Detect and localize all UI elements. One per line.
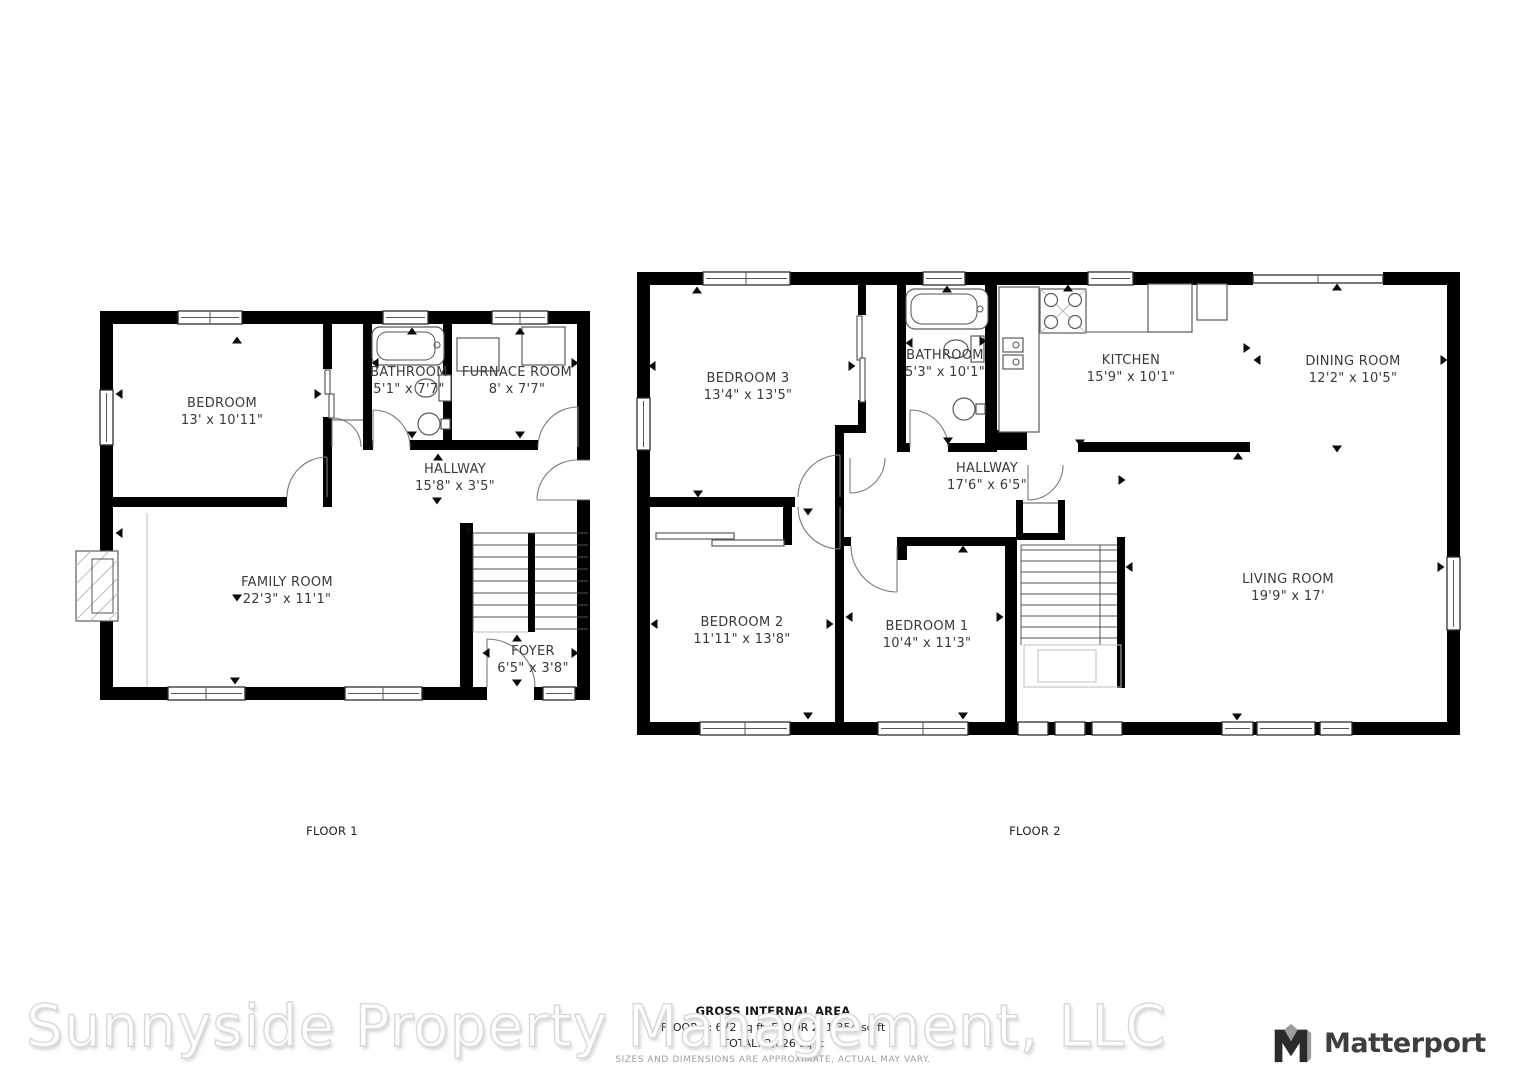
room-label-living-room: LIVING ROOM 19'9" x 17' xyxy=(1242,571,1334,605)
room-label-foyer: FOYER 6'5" x 3'8" xyxy=(497,643,568,677)
room-dims: 15'8" x 3'5" xyxy=(415,478,495,495)
room-label-dining-room: DINING ROOM 12'2" x 10'5" xyxy=(1305,353,1400,387)
room-dims: 19'9" x 17' xyxy=(1242,588,1334,605)
room-name: FURNACE ROOM xyxy=(462,364,572,381)
room-label-bedroom-1: BEDROOM 1 10'4" x 11'3" xyxy=(883,618,972,652)
room-name: DINING ROOM xyxy=(1305,353,1400,370)
room-dims: 15'9" x 10'1" xyxy=(1087,369,1176,386)
sink-icon-2 xyxy=(953,398,985,420)
room-dims: 6'5" x 3'8" xyxy=(497,660,568,677)
floor-plan-drawing xyxy=(0,0,1527,1080)
room-dims: 13' x 10'11" xyxy=(181,412,263,429)
fireplace xyxy=(76,551,118,621)
stove-icon xyxy=(1040,289,1086,333)
watermark-text: Sunnyside Property Management, LLC xyxy=(26,992,1167,1060)
room-label-hallway-f2: HALLWAY 17'6" x 6'5" xyxy=(947,460,1027,494)
room-label-bedroom-2: BEDROOM 2 11'11" x 13'8" xyxy=(693,614,790,648)
room-name: BATHROOM xyxy=(370,364,448,381)
room-label-bathroom-f1: BATHROOM 5'1" x 7'7" xyxy=(370,364,448,398)
room-label-family-room: FAMILY ROOM 22'3" x 11'1" xyxy=(241,574,333,608)
floor1-caption: FLOOR 1 xyxy=(306,824,358,838)
floor2-plan xyxy=(637,272,1460,735)
floor2-caption: FLOOR 2 xyxy=(1009,824,1061,838)
matterport-wordmark: Matterport xyxy=(1324,1028,1486,1059)
floor2-stairs xyxy=(1021,545,1121,687)
room-name: BEDROOM 1 xyxy=(883,618,972,635)
page: { "floors": [ { "caption": "FLOOR 1", "r… xyxy=(0,0,1527,1080)
room-dims: 5'1" x 7'7" xyxy=(370,381,448,398)
room-name: BEDROOM 3 xyxy=(704,370,793,387)
room-label-bedroom: BEDROOM 13' x 10'11" xyxy=(181,395,263,429)
room-dims: 11'11" x 13'8" xyxy=(693,631,790,648)
room-label-furnace-room: FURNACE ROOM 8' x 7'7" xyxy=(462,364,572,398)
room-dims: 12'2" x 10'5" xyxy=(1305,370,1400,387)
room-dims: 5'3" x 10'1" xyxy=(905,364,985,381)
room-dims: 22'3" x 11'1" xyxy=(241,591,333,608)
room-name: HALLWAY xyxy=(947,460,1027,477)
room-label-bedroom-3: BEDROOM 3 13'4" x 13'5" xyxy=(704,370,793,404)
room-label-bathroom-f2: BATHROOM 5'3" x 10'1" xyxy=(905,347,985,381)
room-name: KITCHEN xyxy=(1087,352,1176,369)
room-name: BATHROOM xyxy=(905,347,985,364)
room-name: HALLWAY xyxy=(415,461,495,478)
matterport-logo: Matterport xyxy=(1268,1020,1486,1066)
bathtub-icon xyxy=(372,327,444,365)
room-label-hallway-f1: HALLWAY 15'8" x 3'5" xyxy=(415,461,495,495)
room-dims: 10'4" x 11'3" xyxy=(883,635,972,652)
room-name: BEDROOM 2 xyxy=(693,614,790,631)
room-name: FOYER xyxy=(497,643,568,660)
room-name: LIVING ROOM xyxy=(1242,571,1334,588)
room-name: BEDROOM xyxy=(181,395,263,412)
room-dims: 8' x 7'7" xyxy=(462,381,572,398)
room-name: FAMILY ROOM xyxy=(241,574,333,591)
room-dims: 17'6" x 6'5" xyxy=(947,477,1027,494)
bathtub-icon-2 xyxy=(906,289,988,329)
room-label-kitchen: KITCHEN 15'9" x 10'1" xyxy=(1087,352,1176,386)
matterport-icon xyxy=(1268,1020,1314,1066)
room-dims: 13'4" x 13'5" xyxy=(704,387,793,404)
